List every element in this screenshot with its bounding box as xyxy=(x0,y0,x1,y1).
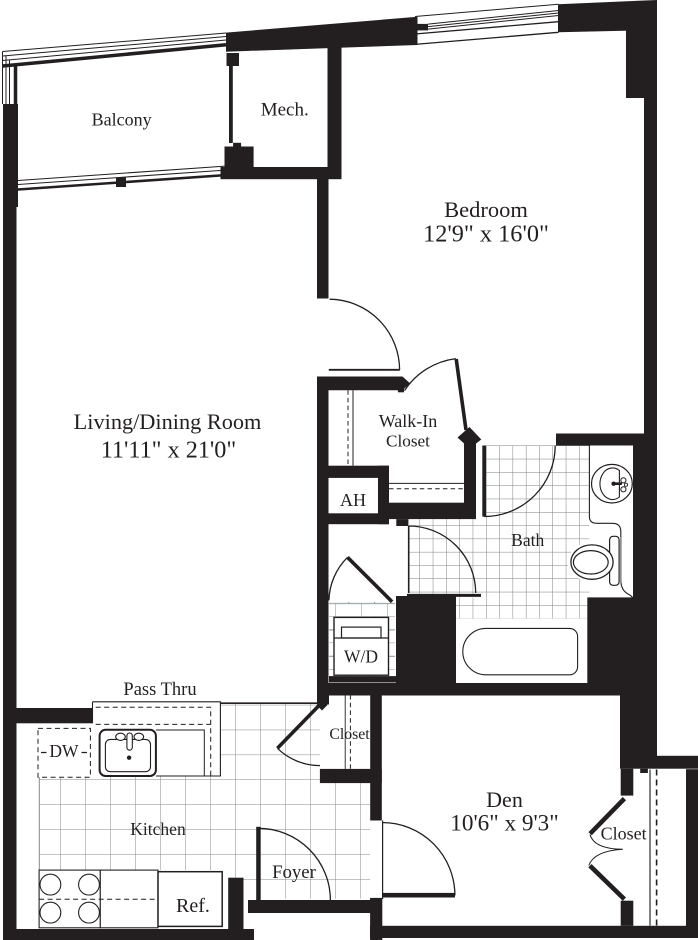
svg-text:Pass Thru: Pass Thru xyxy=(123,680,196,700)
svg-text:W/D: W/D xyxy=(344,647,378,667)
svg-text:Foyer: Foyer xyxy=(272,862,317,883)
svg-text:Living/Dining Room: Living/Dining Room xyxy=(74,409,262,434)
svg-text:Bath: Bath xyxy=(511,530,544,550)
svg-text:Balcony: Balcony xyxy=(92,110,152,130)
svg-text:Closet: Closet xyxy=(386,432,430,451)
svg-text:12'9" x 16'0": 12'9" x 16'0" xyxy=(423,221,549,248)
svg-text:Kitchen: Kitchen xyxy=(130,819,186,839)
svg-text:Mech.: Mech. xyxy=(261,100,309,121)
svg-text:10'6" x 9'3": 10'6" x 9'3" xyxy=(450,811,558,837)
svg-text:Bedroom: Bedroom xyxy=(444,197,528,222)
svg-text:Walk-In: Walk-In xyxy=(379,411,438,431)
svg-text:Ref.: Ref. xyxy=(176,895,210,917)
svg-text:Closet: Closet xyxy=(329,726,370,743)
svg-text:11'11" x 21'0": 11'11" x 21'0" xyxy=(101,437,237,464)
svg-text:AH: AH xyxy=(340,490,366,510)
svg-text:Den: Den xyxy=(486,787,523,812)
svg-text:Closet: Closet xyxy=(601,824,647,844)
svg-text:DW: DW xyxy=(49,741,79,761)
